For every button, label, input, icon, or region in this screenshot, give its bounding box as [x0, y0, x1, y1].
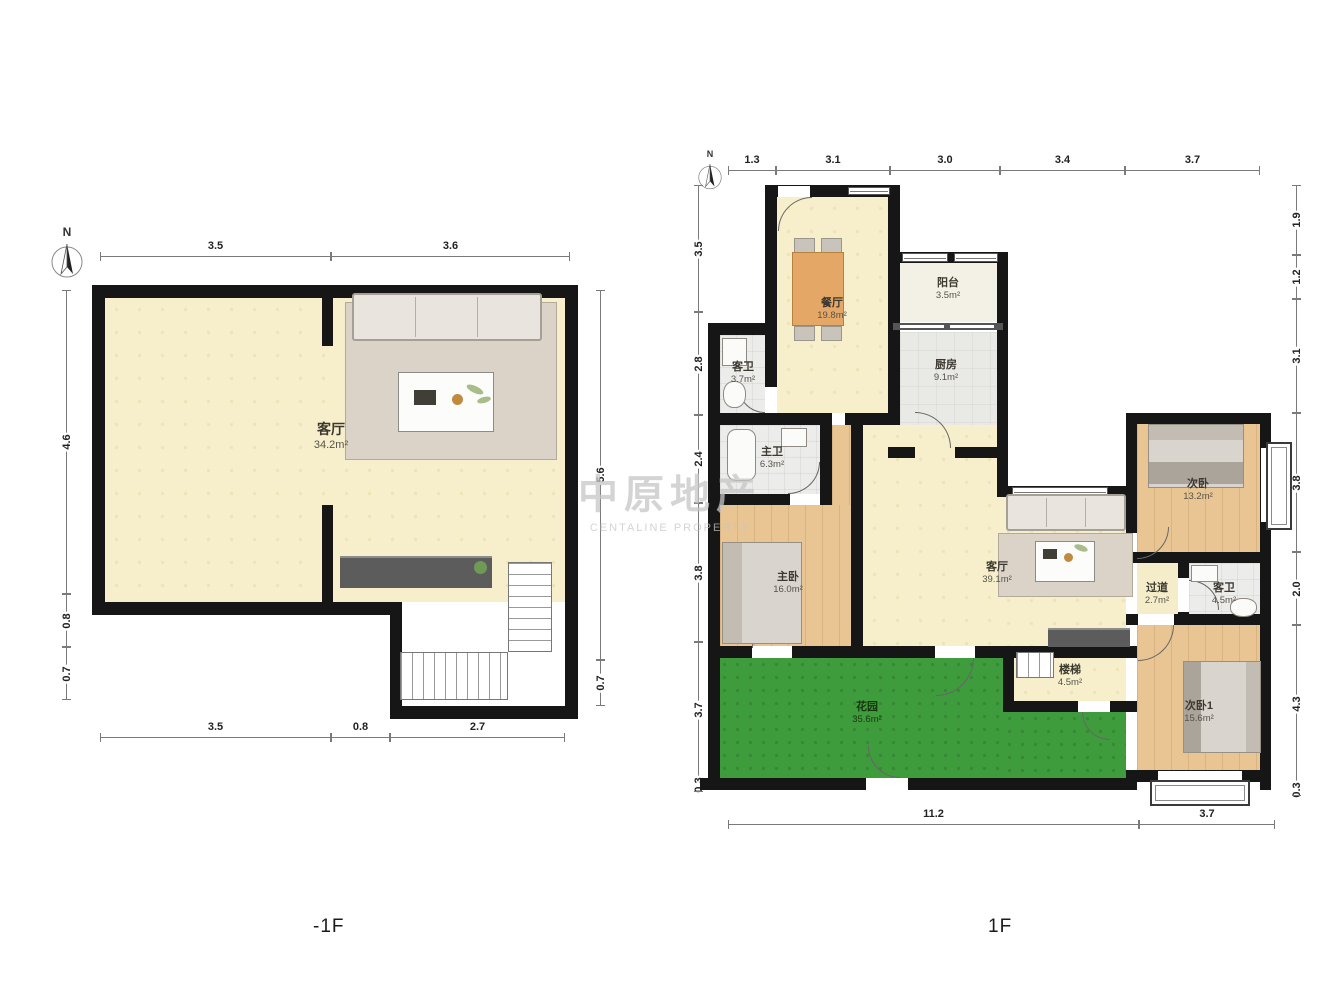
dim-bottom: 3.5 — [100, 737, 331, 738]
dim-label: 2.0 — [1291, 579, 1303, 598]
room-label-second-bed: 次卧 13.2m² — [1183, 477, 1213, 504]
wall — [92, 285, 105, 615]
dim-label: 1.2 — [1291, 267, 1303, 286]
room-area: 39.1m² — [982, 574, 1012, 586]
dim-label: 0.7 — [61, 664, 73, 683]
north-compass--1f: N — [46, 226, 88, 287]
dim-label: 3.7 — [1197, 808, 1216, 820]
dim-left: 2.8 — [698, 312, 699, 415]
room-label-dining: 餐厅 19.8m² — [817, 296, 847, 323]
dim-label: 3.8 — [1291, 473, 1303, 492]
room-name: 楼梯 — [1058, 663, 1082, 677]
dim-top: 3.4 — [1000, 170, 1125, 171]
window — [902, 253, 948, 262]
dim-label: 3.0 — [935, 154, 954, 166]
dim-label: 0.8 — [61, 611, 73, 630]
room-label-master-bed: 主卧 16.0m² — [773, 570, 803, 597]
dim-label: 3.5 — [206, 721, 225, 733]
wall — [820, 494, 832, 505]
chair — [794, 326, 815, 341]
floor-living — [863, 425, 997, 646]
dim-label: 0.3 — [1291, 780, 1303, 799]
chair — [821, 326, 842, 341]
dim-top: 1.3 — [728, 170, 776, 171]
table-decor — [414, 390, 436, 405]
floor-caption-b1: -1F — [313, 916, 345, 938]
pillows — [1149, 425, 1243, 440]
sink — [1191, 565, 1218, 582]
plant — [474, 561, 487, 574]
dim-bottom: 3.7 — [1139, 824, 1275, 825]
floor-caption-1f: 1F — [988, 916, 1012, 938]
wall — [1126, 413, 1271, 424]
sofa — [1006, 494, 1126, 531]
dim-right: 5.6 — [600, 290, 601, 660]
wall-stub — [322, 298, 333, 346]
dim-right: 0.3 — [1296, 783, 1297, 796]
room-name: 过道 — [1145, 581, 1169, 595]
dim-label: 11.2 — [921, 808, 946, 820]
table-decor — [1064, 553, 1073, 562]
room-label-kitchen: 厨房 9.1m² — [934, 358, 958, 385]
dim-left: 3.8 — [698, 503, 699, 642]
room-name: 主卫 — [760, 445, 784, 459]
room-name: 主卧 — [773, 570, 803, 584]
room-area: 4.5m² — [1058, 677, 1082, 689]
dim-top: 3.0 — [890, 170, 1000, 171]
table-decor — [1043, 549, 1057, 559]
wall — [1178, 552, 1189, 578]
wall — [712, 494, 790, 505]
wall — [765, 335, 777, 387]
dim-label: 2.8 — [693, 354, 705, 373]
room-label-guest-bath-upper: 客卫 3.7m² — [731, 360, 755, 387]
dim-label: 3.1 — [823, 154, 842, 166]
floor-corridor — [832, 425, 851, 505]
dim-label: 4.3 — [1291, 694, 1303, 713]
dim-label: 2.4 — [693, 449, 705, 468]
floorplan-canvas: N 3.5 3.6 4.6 0.8 0.7 5.6 0.7 3.5 0.8 2.… — [0, 0, 1334, 1000]
wall — [997, 252, 1008, 497]
bay-window — [1150, 780, 1250, 806]
dim-label: 1.3 — [742, 154, 761, 166]
dim-left: 0.3 — [698, 778, 699, 792]
wall — [851, 413, 863, 658]
dim-label: 3.4 — [1053, 154, 1072, 166]
dim-top: 3.1 — [776, 170, 890, 171]
pillows — [723, 543, 742, 643]
room-label-living-b1: 客厅 34.2m² — [314, 420, 348, 452]
slider-glass — [950, 325, 994, 328]
room-area: 35.6m² — [852, 714, 882, 726]
dim-label: 0.7 — [595, 673, 607, 692]
room-area: 4.5m² — [1212, 595, 1236, 607]
wall — [700, 778, 866, 790]
room-name: 阳台 — [936, 276, 960, 290]
dim-bottom: 11.2 — [728, 824, 1139, 825]
dim-right: 1.2 — [1296, 255, 1297, 299]
room-label-balcony: 阳台 3.5m² — [936, 276, 960, 303]
room-area: 2.7m² — [1145, 595, 1169, 607]
dim-top: 3.6 — [331, 256, 570, 257]
tv-console — [1048, 628, 1130, 647]
staircase — [1016, 652, 1054, 678]
sink — [781, 428, 807, 447]
dim-label: 4.6 — [61, 432, 73, 451]
slider-glass — [900, 325, 944, 328]
dim-label: 3.8 — [693, 563, 705, 582]
dim-right: 2.0 — [1296, 552, 1297, 625]
wall — [765, 185, 777, 335]
dim-left: 4.6 — [66, 290, 67, 594]
room-label-garden: 花园 35.6m² — [852, 700, 882, 727]
room-name: 厨房 — [934, 358, 958, 372]
dim-top: 3.5 — [100, 256, 331, 257]
room-area: 15.6m² — [1184, 713, 1214, 725]
room-label-stairs: 楼梯 4.5m² — [1058, 663, 1082, 690]
dim-label: 3.1 — [1291, 346, 1303, 365]
wall — [1174, 614, 1271, 625]
wall — [1003, 701, 1078, 712]
dim-left: 3.5 — [698, 185, 699, 312]
room-label-hallway: 过道 2.7m² — [1145, 581, 1169, 608]
door-opening — [778, 186, 810, 197]
wall — [851, 646, 935, 658]
dim-label: 3.7 — [1183, 154, 1202, 166]
tv-console — [340, 556, 492, 588]
dim-label: 3.6 — [441, 240, 460, 252]
dim-right: 1.9 — [1296, 185, 1297, 255]
room-area: 34.2m² — [314, 438, 348, 452]
wall — [820, 413, 832, 505]
dim-right: 0.7 — [600, 660, 601, 706]
room-area: 13.2m² — [1183, 491, 1213, 503]
wall — [1110, 701, 1137, 712]
dim-label: 2.7 — [468, 721, 487, 733]
staircase — [400, 652, 508, 700]
table-decor — [452, 394, 463, 405]
chair — [794, 238, 815, 253]
wall — [1126, 413, 1137, 533]
wall — [888, 185, 900, 415]
dim-label: 1.9 — [1291, 210, 1303, 229]
room-label-guest-bath: 客卫 4.5m² — [1212, 581, 1236, 608]
wall — [908, 778, 1137, 790]
dim-top: 3.7 — [1125, 170, 1260, 171]
dim-bottom: 2.7 — [390, 737, 565, 738]
compass-icon — [695, 159, 725, 193]
wall — [708, 323, 720, 790]
wall — [708, 413, 823, 425]
room-name: 客卫 — [1212, 581, 1236, 595]
room-label-master-bath: 主卫 6.3m² — [760, 445, 784, 472]
room-area: 6.3m² — [760, 459, 784, 471]
room-name: 花园 — [852, 700, 882, 714]
dim-right: 3.1 — [1296, 299, 1297, 413]
room-area: 3.5m² — [936, 290, 960, 302]
room-area: 19.8m² — [817, 310, 847, 322]
dim-left: 3.7 — [698, 642, 699, 778]
room-name: 次卧1 — [1184, 699, 1214, 713]
pillows — [1246, 662, 1260, 752]
sofa — [352, 293, 542, 341]
dim-right: 4.3 — [1296, 625, 1297, 783]
north-label: N — [46, 226, 88, 238]
room-name: 客卫 — [731, 360, 755, 374]
window — [954, 253, 998, 262]
north-label: N — [694, 150, 726, 159]
bathtub — [727, 429, 756, 481]
room-name: 客厅 — [314, 420, 348, 438]
chair — [821, 238, 842, 253]
staircase — [508, 562, 552, 652]
dim-label: 3.5 — [693, 239, 705, 258]
wall — [565, 285, 578, 719]
wall — [975, 646, 1137, 658]
bay-window — [1266, 442, 1292, 530]
dim-label: 0.8 — [351, 721, 370, 733]
room-label-living: 客厅 39.1m² — [982, 560, 1012, 587]
room-name: 餐厅 — [817, 296, 847, 310]
dim-label: 3.7 — [693, 700, 705, 719]
wall — [390, 706, 578, 719]
dim-label: 5.6 — [595, 465, 607, 484]
dim-label: 3.5 — [206, 240, 225, 252]
room-name: 次卧 — [1183, 477, 1213, 491]
dim-bottom: 0.8 — [331, 737, 390, 738]
room-name: 客厅 — [982, 560, 1012, 574]
dim-left: 0.8 — [66, 594, 67, 647]
wall-stub — [322, 505, 333, 602]
wall — [708, 646, 752, 658]
room-label-second-bed-1: 次卧1 15.6m² — [1184, 699, 1214, 726]
wall — [92, 602, 402, 615]
room-area: 16.0m² — [773, 584, 803, 596]
wall — [1126, 614, 1138, 625]
dim-left: 2.4 — [698, 415, 699, 503]
dim-left: 0.7 — [66, 647, 67, 700]
window — [848, 187, 890, 195]
dim-right: 3.8 — [1296, 413, 1297, 552]
room-area: 9.1m² — [934, 372, 958, 384]
room-area: 3.7m² — [731, 374, 755, 386]
compass-icon — [47, 238, 87, 282]
wall — [888, 447, 915, 458]
